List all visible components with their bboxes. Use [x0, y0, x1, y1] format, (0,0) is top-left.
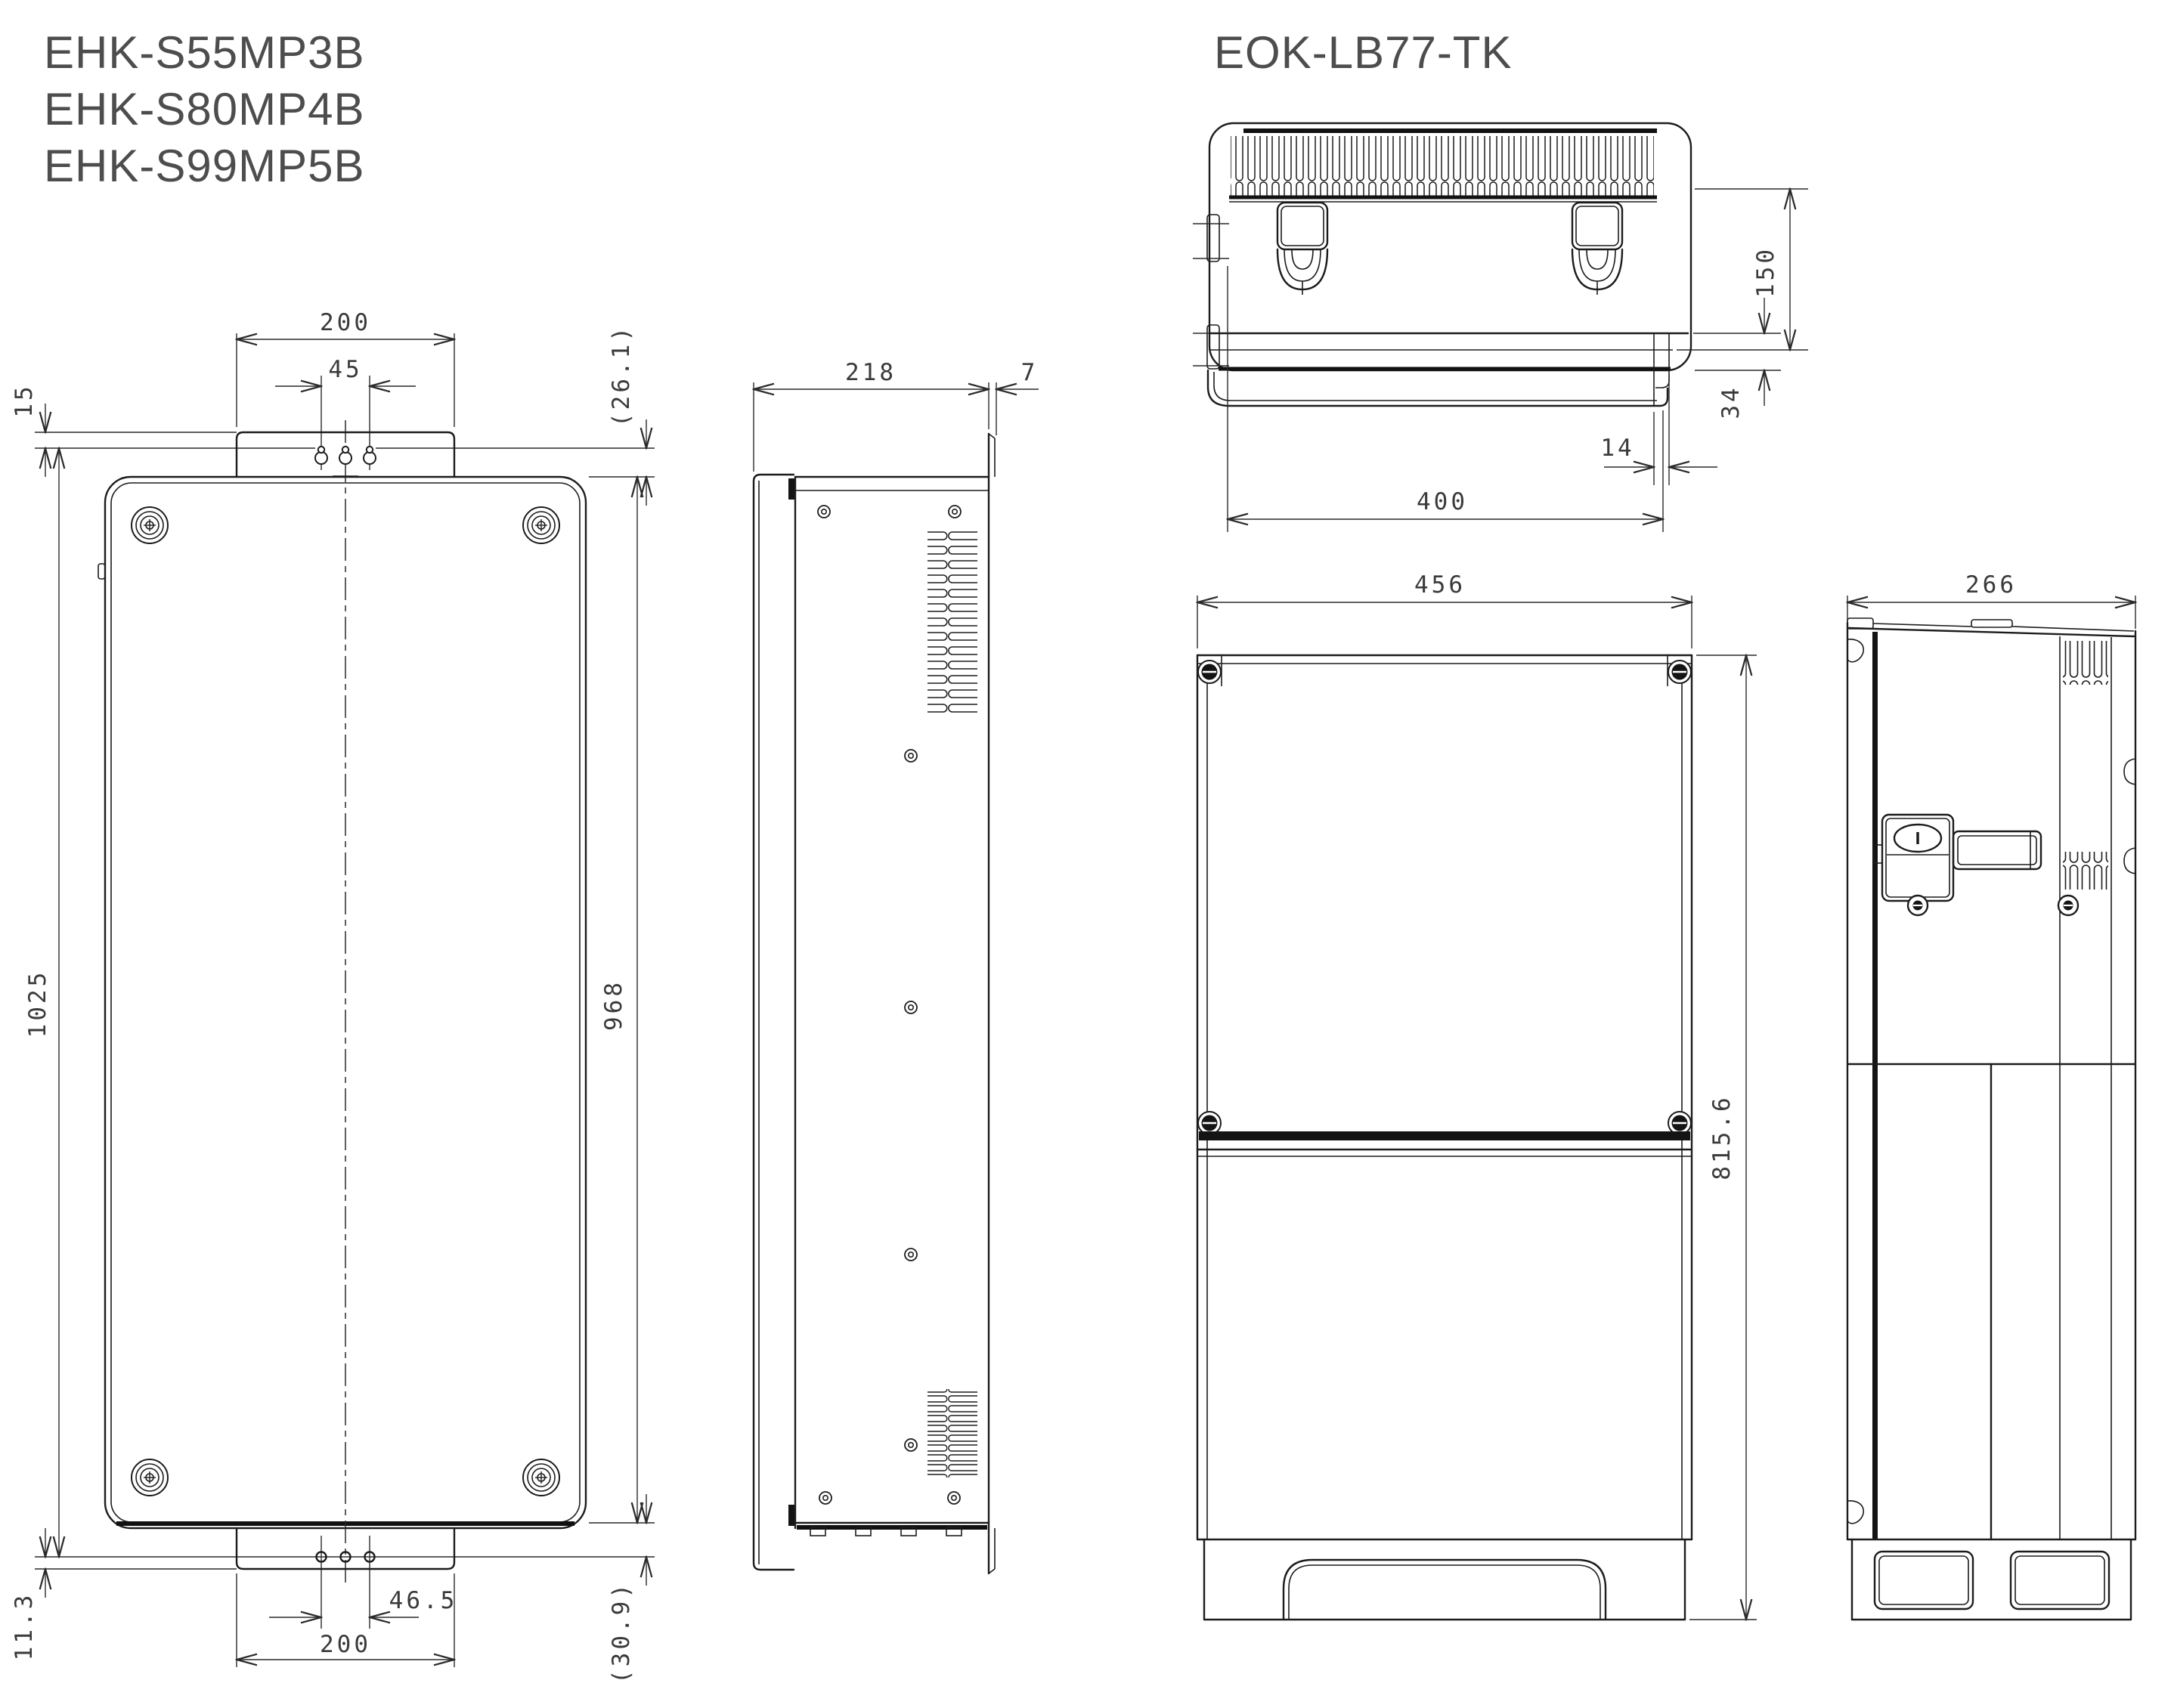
dim-eok-width: 456 — [1414, 571, 1466, 599]
eok-front-dark-band — [1199, 1131, 1690, 1140]
dim-eok-height: 815.6 — [1708, 1094, 1736, 1180]
dim-ehk-body-height: 968 — [600, 979, 627, 1031]
ehk-front-view: 200 45 15 (26.1) 1025 968 11.3 46.5 200 … — [11, 309, 655, 1684]
eok-back-dim-lines — [1228, 189, 1808, 532]
eok-front-body — [1197, 655, 1692, 1620]
dim-ehk-top-bracket-width: 200 — [320, 309, 371, 336]
dim-ehk-top-edge-offset: (26.1) — [608, 324, 635, 427]
ehk-side-view: 218 7 — [754, 359, 1039, 1573]
dim-ehk-bottom-edge-offset: (30.9) — [608, 1581, 635, 1684]
dim-eok-rail-to-bottom: 34 — [1717, 385, 1745, 419]
model-title-eok: EOK-LB77-TK — [1214, 27, 1512, 78]
eok-side-bottom-vents — [2063, 852, 2108, 890]
eok-back-body — [1193, 123, 1691, 406]
eok-hook-left — [1277, 203, 1327, 295]
dim-eok-hook-drop: 150 — [1752, 246, 1779, 298]
ehk-side-dim-lines — [754, 382, 1039, 472]
eok-side-view: 266 — [1847, 571, 2135, 1620]
eok-handle — [1953, 831, 2041, 869]
ehk-front-dim-lines — [35, 333, 655, 1667]
ehk-side-top-louvers — [928, 529, 977, 718]
ehk-side-body — [754, 434, 995, 1573]
model-title-ehk-3: EHK-S99MP5B — [44, 141, 365, 191]
eok-power-switch — [1874, 815, 1953, 901]
dim-ehk-flange: 7 — [1021, 359, 1039, 386]
dim-eok-rail-end-offset: 14 — [1600, 435, 1634, 462]
technical-drawing-page: EHK-S55MP3B EHK-S80MP4B EHK-S99MP5B EOK-… — [0, 0, 2174, 1708]
dim-ehk-bottom-hole-offset: 11.3 — [11, 1592, 38, 1661]
technical-drawing-canvas: EHK-S55MP3B EHK-S80MP4B EHK-S99MP5B EOK-… — [0, 0, 2174, 1708]
dim-ehk-bottom-hole-pitch: 46.5 — [389, 1587, 458, 1614]
eok-front-dim-lines — [1197, 596, 1757, 1620]
eok-back-view: 150 34 14 400 — [1193, 123, 1808, 532]
dim-ehk-top-hole-pitch: 45 — [328, 356, 362, 383]
eok-side-top-vents — [2063, 641, 2108, 685]
model-title-ehk-2: EHK-S80MP4B — [44, 84, 365, 135]
dim-ehk-depth: 218 — [845, 359, 897, 386]
eok-top-fins — [1231, 136, 1654, 196]
dim-ehk-top-hole-offset: 15 — [11, 383, 38, 417]
ehk-side-bottom-louvers — [928, 1389, 977, 1477]
ehk-front-body — [98, 420, 586, 1587]
dim-ehk-overall-height: 1025 — [24, 970, 51, 1038]
model-title-ehk-1: EHK-S55MP3B — [44, 27, 365, 78]
eok-side-door-edge — [1872, 632, 1878, 1539]
eok-front-view: 456 815.6 — [1197, 571, 1757, 1620]
eok-hook-right — [1572, 203, 1622, 295]
dim-ehk-bottom-bracket-width: 200 — [320, 1631, 371, 1658]
dim-eok-mount-width: 400 — [1417, 488, 1468, 515]
eok-side-body — [1847, 618, 2135, 1620]
dim-eok-depth: 266 — [1965, 571, 2017, 599]
